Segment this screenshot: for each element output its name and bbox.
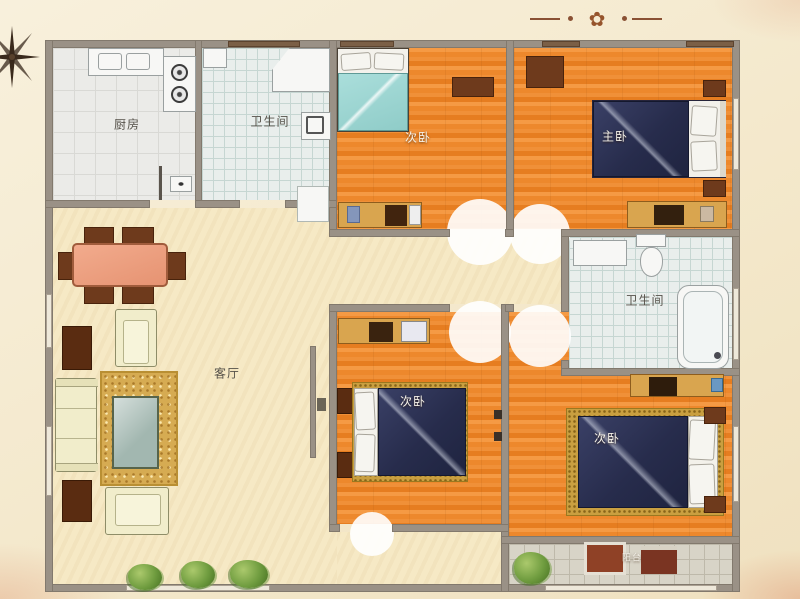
wall-segment [506, 40, 514, 237]
kitchen-appliance [170, 176, 192, 192]
nightstand-icon [704, 407, 726, 424]
seat-cushion [115, 494, 161, 526]
wall-segment [392, 524, 509, 532]
ornament-dot [622, 16, 627, 21]
ornament-line [632, 18, 662, 20]
window [686, 41, 734, 47]
room-label-bathroom-right: 卫生间 [625, 292, 664, 309]
bath-mat [297, 186, 329, 222]
nightstand-icon [703, 80, 726, 97]
plant-icon [181, 561, 215, 588]
bed-blanket [338, 73, 408, 131]
bathroom-counter [573, 240, 627, 266]
sink-icon [126, 53, 150, 70]
room-label-kitchen: 厨房 [114, 116, 140, 133]
wall-segment [505, 229, 514, 237]
armrest [56, 379, 98, 387]
decor-item [711, 378, 723, 392]
door-hinge [494, 410, 502, 419]
tv-partition [310, 346, 316, 458]
sink-icon [98, 53, 122, 70]
room-label-bedroom-bottom-right: 次卧 [594, 430, 620, 447]
ornament-icon: ✿ [530, 4, 690, 34]
decor-item [409, 205, 421, 225]
plant-icon [230, 560, 268, 588]
pillow [690, 140, 718, 171]
nightstand-icon [704, 496, 726, 513]
armchair-icon [115, 309, 157, 367]
floor-plan: 厨房 卫生间 次卧 主卧 卫生间 客厅 次卧 次卧 阳台 ✿ [0, 0, 800, 599]
planter-icon [584, 542, 626, 575]
dresser-icon [338, 318, 430, 344]
side-table-icon [62, 480, 92, 522]
window [228, 41, 300, 47]
headboard [720, 101, 726, 177]
bathroom-sink [203, 48, 227, 68]
sofa-icon [55, 378, 97, 472]
window [733, 98, 739, 170]
side-table-icon [62, 326, 92, 370]
dresser-icon [630, 374, 724, 397]
ornament-line [530, 18, 560, 20]
toilet-icon [636, 234, 666, 247]
room-label-living-room: 客厅 [214, 365, 240, 382]
window [46, 294, 52, 348]
room-label-bedroom-bottom-middle: 次卧 [400, 393, 426, 410]
armrest [56, 463, 98, 471]
door-arc-icon [350, 512, 394, 556]
tv-icon [649, 377, 677, 396]
dining-chair-icon [84, 284, 114, 304]
tv-icon [317, 398, 326, 411]
pillow [374, 52, 405, 71]
room-label-bedroom-top-middle: 次卧 [405, 129, 431, 146]
room-label-bedroom-top-right: 主卧 [602, 128, 628, 145]
plant-icon [514, 552, 550, 584]
burner-icon [171, 64, 188, 81]
decor-item [700, 206, 714, 222]
wall-segment [329, 229, 450, 237]
bed-icon [337, 48, 409, 132]
dining-chair-icon [166, 252, 186, 280]
wall-segment [45, 200, 150, 208]
wall-segment [329, 524, 340, 532]
pillow [340, 52, 371, 71]
dining-chair-icon [122, 284, 154, 304]
wall-segment [561, 229, 569, 312]
wall-segment [195, 200, 240, 208]
pillow [354, 392, 376, 431]
toilet-bowl [640, 247, 663, 277]
coffee-table-icon [112, 396, 159, 469]
pillow [690, 105, 718, 137]
window [46, 426, 52, 496]
window [340, 41, 394, 47]
door-arc-icon [447, 199, 513, 265]
plant-icon [128, 564, 162, 590]
dresser-icon [627, 201, 727, 228]
ornament-dot [568, 16, 573, 21]
wall-segment [329, 304, 337, 532]
ornament-flower: ✿ [580, 2, 614, 36]
pillow [688, 419, 716, 460]
planter-icon [641, 546, 677, 574]
faucet-icon [714, 352, 721, 359]
washer-door [306, 116, 324, 134]
door-hinge [494, 432, 502, 441]
pillow [354, 434, 375, 473]
window [545, 585, 717, 591]
bench-icon [452, 77, 494, 97]
decor-item [347, 206, 360, 223]
wall-segment [501, 304, 509, 592]
wall-segment [505, 304, 514, 312]
room-label-bathroom-top: 卫生间 [250, 113, 289, 130]
loveseat-icon [105, 487, 169, 535]
tv-icon [654, 205, 684, 225]
window [733, 426, 739, 502]
dining-table-icon [72, 243, 168, 287]
room-label-balcony: 阳台 [622, 551, 642, 564]
burner-icon [171, 86, 188, 103]
wardrobe-icon [526, 56, 564, 88]
decor-item [401, 321, 427, 342]
door-arc-icon [509, 305, 571, 367]
bathtub-icon [677, 285, 729, 369]
tv-icon [385, 205, 407, 226]
seat-cushion [123, 320, 149, 364]
nightstand-icon [703, 180, 726, 197]
wall-segment [195, 40, 202, 208]
compass-rose-icon [0, 24, 42, 90]
window [542, 41, 580, 47]
dresser-icon [338, 202, 422, 228]
tv-icon [369, 322, 393, 342]
door-leaf [159, 166, 162, 200]
window [733, 288, 739, 360]
wall-segment [329, 304, 450, 312]
